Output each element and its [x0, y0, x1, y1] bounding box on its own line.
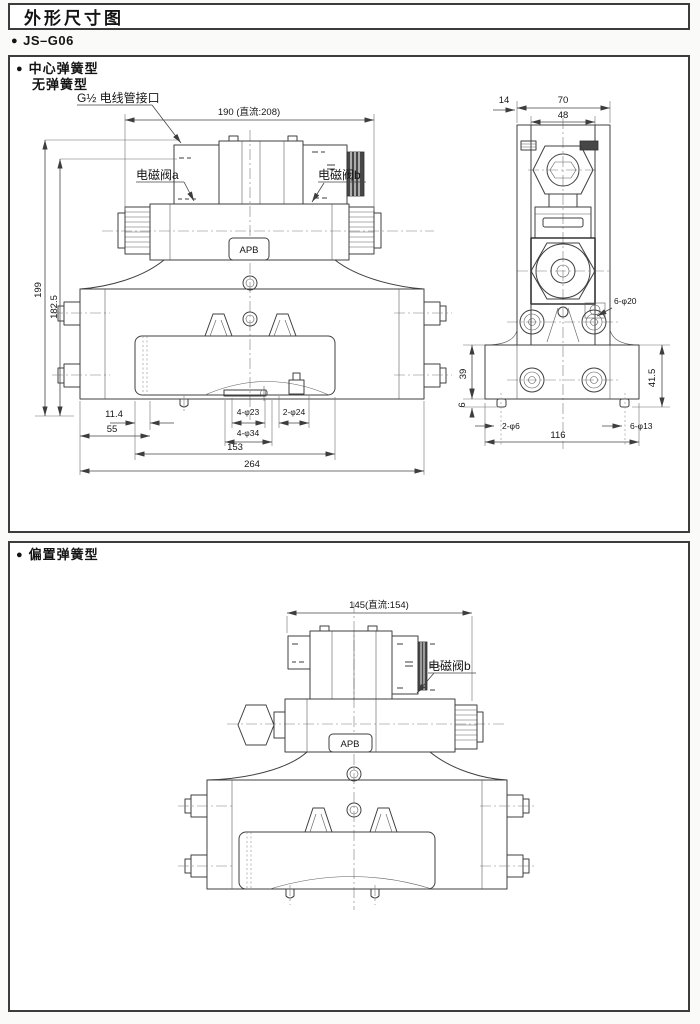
section1-type-2: 无弹簧型: [16, 77, 99, 93]
solenoid-assembly: APB: [118, 136, 381, 260]
valve-body: [178, 752, 536, 905]
dim-overall-width: 190 (直流:208): [218, 106, 280, 118]
subplate: [239, 832, 435, 889]
dim-14: 14: [499, 95, 510, 106]
page: { "page": { "title": "外形尺寸图", "model_bul…: [0, 0, 700, 1024]
bullet-icon: ●: [16, 547, 24, 563]
valve-band: APB: [238, 699, 483, 752]
section-offset-spring: ● 偏置弹簧型 145(直流:154): [8, 541, 690, 1012]
model-line: ● JS–G06: [11, 33, 74, 48]
hex-plug: [238, 705, 274, 745]
page-title-text: 外形尺寸图: [24, 4, 124, 29]
side-view: 70 48 14 6-φ20 39 41.5 6 2-φ6: [457, 95, 670, 449]
dim-41-5: 41.5: [647, 369, 658, 388]
side-dimensions: 70 48 14 6-φ20 39 41.5 6 2-φ6: [457, 95, 670, 446]
dim-55: 55: [107, 424, 118, 435]
dim-264: 264: [244, 459, 260, 470]
solenoid-a-callout: 电磁阀a: [136, 167, 179, 182]
front-view: APB: [33, 90, 452, 475]
dim-70: 70: [558, 95, 569, 106]
nameplate-text: APB: [239, 245, 258, 256]
dim-overall-width: 145(直流:154): [349, 599, 409, 611]
section2-type: 偏置弹簧型: [29, 547, 99, 563]
offset-dimensions: 145(直流:154): [287, 599, 472, 701]
bullet-icon: ●: [11, 35, 18, 47]
bullet-icon: ●: [16, 61, 24, 77]
dim-height-182-5: 182.5: [49, 295, 60, 319]
front-dimensions: 190 (直流:208) G½ 电线管接口 电磁阀a 电磁阀b 199 182.…: [33, 90, 424, 475]
dim-6: 6: [457, 402, 468, 407]
offset-front-view: 145(直流:154) 电磁阀b: [178, 599, 536, 910]
dim-116: 116: [550, 430, 565, 441]
drawing-offset-spring: 145(直流:154) 电磁阀b: [10, 543, 688, 1010]
subplate: [135, 336, 335, 395]
valve-body: [52, 260, 452, 413]
dim-height-199: 199: [33, 282, 44, 298]
connector-b: [455, 705, 477, 749]
solenoid-b-callout: 电磁阀b: [428, 658, 471, 673]
drawing-center-spring: APB: [10, 57, 688, 531]
holes-4-34: 4-φ34: [237, 428, 260, 438]
section1-label: ● 中心弹簧型 无弹簧型: [16, 61, 99, 93]
dim-39: 39: [458, 369, 469, 380]
section-center-spring: ● 中心弹簧型 无弹簧型: [8, 55, 690, 533]
solenoid-b-callout: 电磁阀b: [318, 167, 361, 182]
model-code: JS–G06: [23, 33, 74, 48]
holes-2-24: 2-φ24: [283, 407, 306, 417]
holes-6-13: 6-φ13: [630, 421, 653, 431]
holes-4-23: 4-φ23: [237, 407, 260, 417]
solenoid-assembly: [288, 626, 440, 699]
section1-type-1: 中心弹簧型: [29, 61, 99, 77]
nameplate-text: APB: [340, 739, 359, 750]
page-title: 外形尺寸图: [8, 3, 690, 30]
holes-2-6: 2-φ6: [502, 421, 520, 431]
holes-6-20: 6-φ20: [614, 296, 637, 306]
dim-48: 48: [558, 110, 569, 121]
dim-153: 153: [227, 442, 243, 453]
dim-11-4: 11.4: [105, 409, 123, 420]
section2-label: ● 偏置弹簧型: [16, 547, 99, 563]
